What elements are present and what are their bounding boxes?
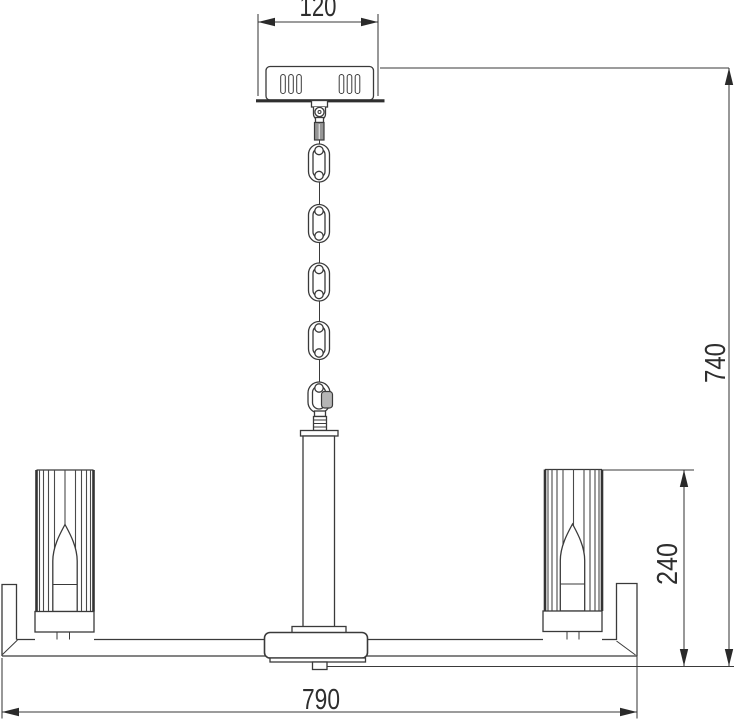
arm-end-upturn — [2, 585, 17, 657]
arm-end-right — [617, 584, 638, 657]
chain-link — [309, 322, 330, 360]
central-hub — [265, 633, 368, 670]
chain-link — [309, 144, 330, 182]
column-top-cap — [301, 431, 339, 437]
socket-left — [35, 612, 94, 633]
wire-collar — [316, 118, 324, 123]
chain-link — [309, 263, 330, 301]
arrowhead-top — [680, 470, 688, 487]
mounting-tab — [313, 662, 328, 670]
drawing-svg: 120 740 240 790 — [0, 0, 735, 720]
threaded-coupler — [314, 411, 327, 431]
dimension-canopy-width-value: 120 — [300, 0, 337, 23]
miter-line — [3, 640, 18, 655]
arrowhead-left — [258, 18, 275, 26]
eyelet-ring — [315, 107, 324, 116]
coupler-collar — [315, 411, 326, 417]
carabiner-gate — [322, 392, 333, 409]
arrowhead-bottom — [725, 649, 733, 666]
canopy-connector — [312, 101, 328, 141]
candle-bulb-right — [560, 524, 584, 611]
arrowhead-top — [725, 68, 733, 85]
socket-right — [543, 611, 602, 632]
candle-bulb-left — [53, 525, 77, 612]
suspension-chain — [308, 144, 333, 413]
link-eye — [315, 384, 323, 392]
dimension-arm-length-value: 790 — [302, 684, 340, 716]
quick-link-carabiner — [308, 382, 333, 413]
hub-body — [265, 633, 368, 659]
chain-link — [309, 205, 330, 243]
dimension-shade-section-value: 240 — [652, 543, 684, 585]
column-tube — [303, 436, 335, 627]
dimension-overall-height-value: 740 — [700, 343, 732, 383]
lamp-left — [35, 470, 94, 640]
central-column — [292, 431, 346, 634]
arrowhead-bottom — [680, 649, 688, 666]
canopy-cover — [266, 67, 374, 101]
dimension-shade-section: 240 — [602, 470, 694, 666]
arrowhead-left — [2, 708, 19, 716]
arm-end-upturn — [617, 584, 638, 657]
arm-end-left — [2, 585, 18, 657]
ceiling-canopy — [256, 67, 385, 101]
lamp-right — [543, 470, 602, 640]
arrowhead-right — [361, 18, 378, 26]
connector-flange — [312, 101, 328, 108]
arrowhead-right — [620, 708, 637, 716]
miter-line — [617, 641, 636, 655]
chandelier-technical-drawing: 120 740 240 790 — [0, 0, 735, 720]
